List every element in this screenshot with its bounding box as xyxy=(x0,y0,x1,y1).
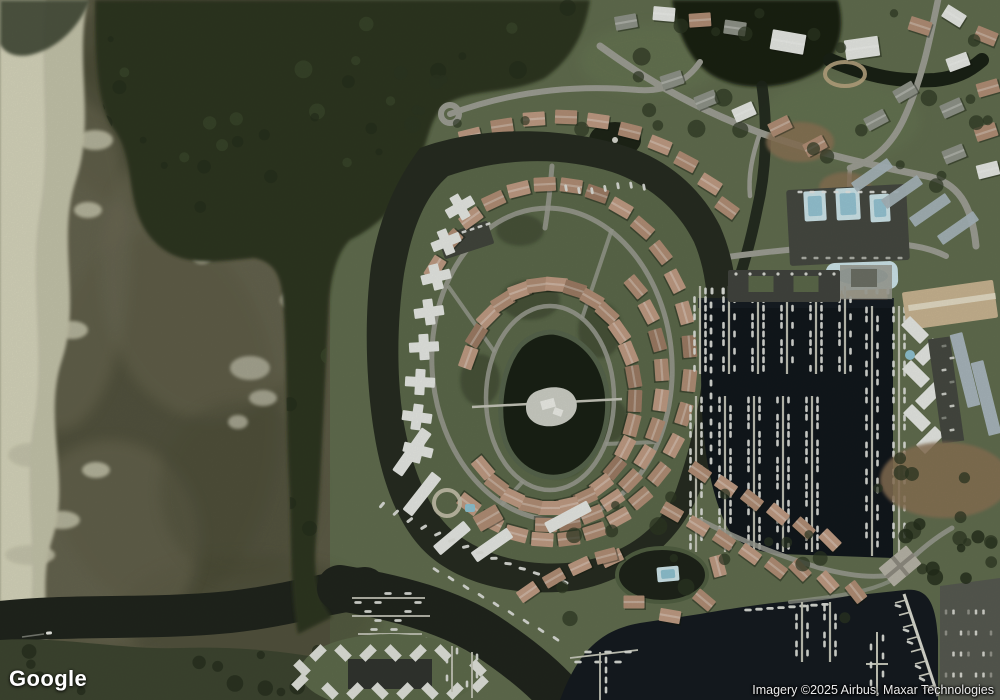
atmosphere xyxy=(0,0,1000,700)
imagery-attribution: Imagery ©2025 Airbus, Maxar Technologies xyxy=(752,683,994,697)
google-logo[interactable]: Google xyxy=(9,666,87,692)
satellite-imagery[interactable] xyxy=(0,0,1000,700)
map-canvas[interactable]: Google Imagery ©2025 Airbus, Maxar Techn… xyxy=(0,0,1000,700)
